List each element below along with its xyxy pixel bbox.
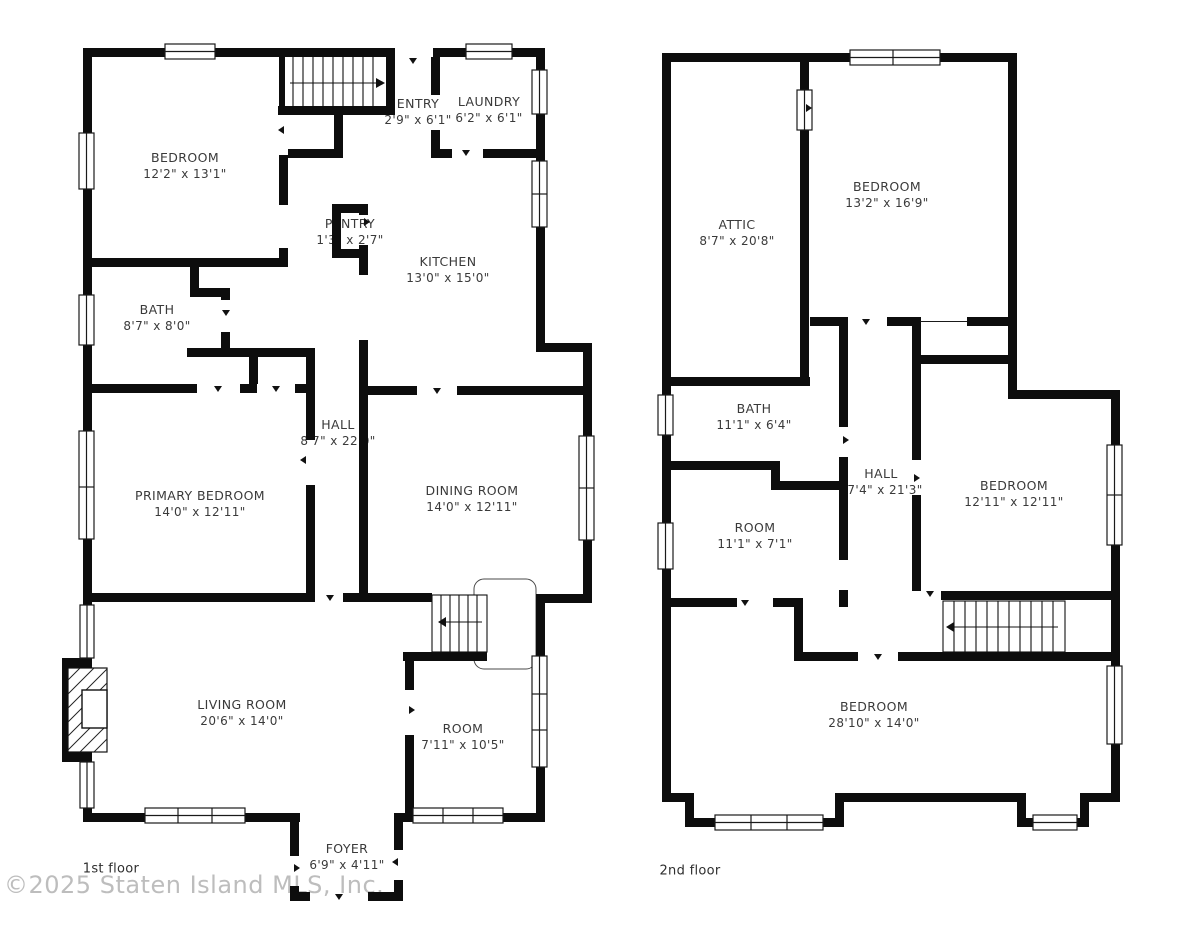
room-name: BATH	[123, 302, 190, 318]
room-name: ATTIC	[699, 217, 774, 233]
room-label-bedroom-2f-b: BEDROOM 12'11" x 12'11"	[964, 478, 1063, 510]
first-floor-plan	[62, 44, 594, 901]
room-label-hall-2f: HALL 17'4" x 21'3"	[839, 466, 922, 498]
room-name: ENTRY	[384, 96, 451, 112]
room-label-kitchen: KITCHEN 13'0" x 15'0"	[406, 254, 489, 286]
room-name: BEDROOM	[845, 179, 928, 195]
room-dims: 20'6" x 14'0"	[197, 713, 286, 729]
room-name: HALL	[839, 466, 922, 482]
room-name: HALL	[300, 417, 375, 433]
room-dims: 6'2" x 6'1"	[455, 110, 522, 126]
room-label-bedroom-1f: BEDROOM 12'2" x 13'1"	[143, 150, 226, 182]
room-label-pantry: PANTRY 1'3" x 2'7"	[316, 216, 383, 248]
room-name: BEDROOM	[964, 478, 1063, 494]
room-label-attic: ATTIC 8'7" x 20'8"	[699, 217, 774, 249]
room-label-bedroom-2f-c: BEDROOM 28'10" x 14'0"	[828, 699, 919, 731]
room-dims: 17'4" x 21'3"	[839, 482, 922, 498]
room-dims: 7'11" x 10'5"	[421, 737, 504, 753]
room-label-dining-room: DINING ROOM 14'0" x 12'11"	[426, 483, 519, 515]
staircase-up-icon	[285, 57, 386, 106]
room-label-room-1f: ROOM 7'11" x 10'5"	[421, 721, 504, 753]
room-label-bedroom-2f-a: BEDROOM 13'2" x 16'9"	[845, 179, 928, 211]
room-dims: 28'10" x 14'0"	[828, 715, 919, 731]
room-dims: 12'2" x 13'1"	[143, 166, 226, 182]
room-label-room-2f: ROOM 11'1" x 7'1"	[717, 520, 792, 552]
staircase-2f-icon	[943, 601, 1065, 652]
mls-watermark: ©2025 Staten Island MLS, Inc.	[4, 871, 384, 899]
room-name: LAUNDRY	[455, 94, 522, 110]
room-dims: 12'11" x 12'11"	[964, 494, 1063, 510]
fireplace-icon	[62, 658, 107, 762]
room-dims: 8'7" x 20'8"	[699, 233, 774, 249]
room-name: ROOM	[717, 520, 792, 536]
room-dims: 14'0" x 12'11"	[426, 499, 519, 515]
room-label-bath-1f: BATH 8'7" x 8'0"	[123, 302, 190, 334]
room-name: PANTRY	[316, 216, 383, 232]
room-label-hall-1f: HALL 8'7" x 22'0"	[300, 417, 375, 449]
room-label-laundry: LAUNDRY 6'2" x 6'1"	[455, 94, 522, 126]
door-ticks-first-floor	[214, 58, 470, 900]
room-name: KITCHEN	[406, 254, 489, 270]
room-dims: 11'1" x 7'1"	[717, 536, 792, 552]
floorplan-page: ©2025 Staten Island MLS, Inc. 1st floor …	[0, 0, 1198, 927]
floor-label-2nd: 2nd floor	[659, 864, 720, 879]
room-name: PRIMARY BEDROOM	[135, 488, 265, 504]
room-dims: 8'7" x 8'0"	[123, 318, 190, 334]
room-label-entry: ENTRY 2'9" x 6'1"	[384, 96, 451, 128]
room-name: LIVING ROOM	[197, 697, 286, 713]
room-dims: 6'9" x 4'11"	[309, 857, 384, 873]
room-name: FOYER	[309, 841, 384, 857]
floor-plan-drawing	[0, 0, 1198, 927]
room-dims: 13'2" x 16'9"	[845, 195, 928, 211]
room-dims: 13'0" x 15'0"	[406, 270, 489, 286]
stair-landing-outline	[474, 579, 536, 669]
room-dims: 2'9" x 6'1"	[384, 112, 451, 128]
room-name: DINING ROOM	[426, 483, 519, 499]
room-label-primary-bedroom: PRIMARY BEDROOM 14'0" x 12'11"	[135, 488, 265, 520]
staircase-down-icon	[432, 595, 487, 652]
room-label-foyer: FOYER 6'9" x 4'11"	[309, 841, 384, 873]
room-dims: 14'0" x 12'11"	[135, 504, 265, 520]
room-name: ROOM	[421, 721, 504, 737]
room-name: BEDROOM	[143, 150, 226, 166]
room-dims: 1'3" x 2'7"	[316, 232, 383, 248]
room-name: BEDROOM	[828, 699, 919, 715]
room-name: BATH	[716, 401, 791, 417]
room-label-bath-2f: BATH 11'1" x 6'4"	[716, 401, 791, 433]
room-dims: 11'1" x 6'4"	[716, 417, 791, 433]
room-dims: 8'7" x 22'0"	[300, 433, 375, 449]
room-label-living-room: LIVING ROOM 20'6" x 14'0"	[197, 697, 286, 729]
floor-label-1st: 1st floor	[83, 862, 139, 877]
